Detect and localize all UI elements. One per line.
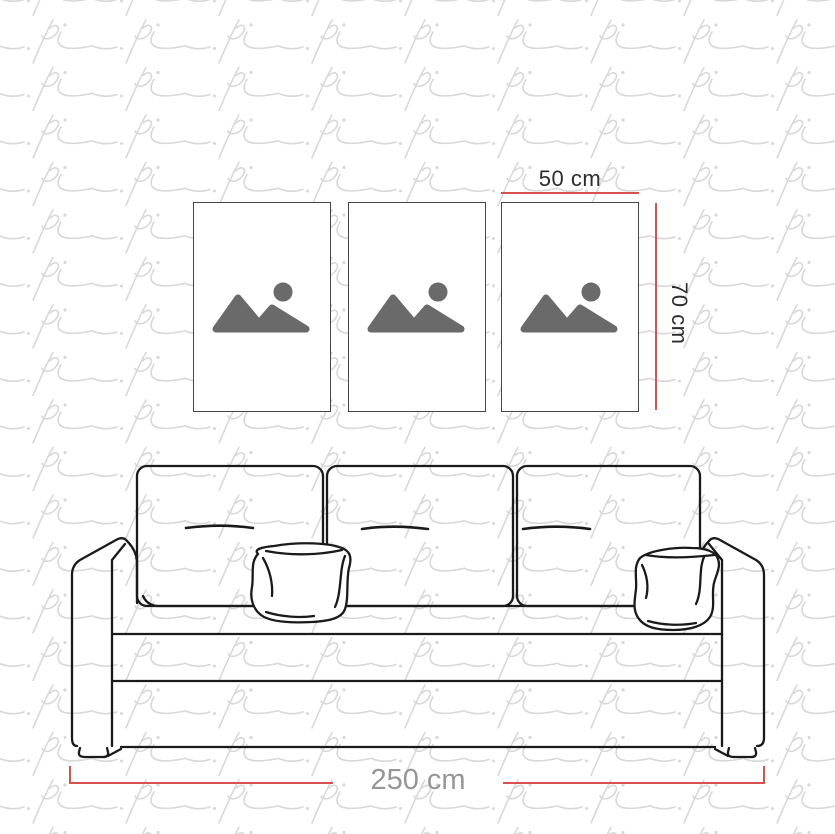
size-guide-canvas: 50 cm 70 cm 250 cm (0, 0, 835, 834)
poster-frame-3 (501, 202, 639, 412)
poster-frame-1 (193, 202, 331, 412)
sofa-width-line-left (69, 782, 333, 784)
image-placeholder-icon (514, 277, 626, 339)
frame-width-line (501, 192, 639, 194)
sofa-width-tick-right (763, 766, 765, 783)
sofa-width-label: 250 cm (333, 764, 503, 796)
frame-height-label: 70 cm (667, 282, 691, 344)
frame-width-label: 50 cm (501, 167, 639, 191)
image-placeholder-icon (361, 277, 473, 339)
sofa-illustration (0, 0, 835, 834)
sofa-left-armrest (72, 538, 137, 757)
frame-height-line (655, 203, 657, 410)
sofa-left-pillow (251, 543, 350, 622)
sofa-width-line-right (503, 782, 765, 784)
sofa-seat-base (112, 596, 722, 747)
sofa-width-tick-left (69, 766, 71, 783)
poster-frame-2 (348, 202, 486, 412)
sofa-right-pillow (635, 548, 719, 630)
image-placeholder-icon (206, 277, 318, 339)
sofa-back-cushions (137, 466, 700, 606)
